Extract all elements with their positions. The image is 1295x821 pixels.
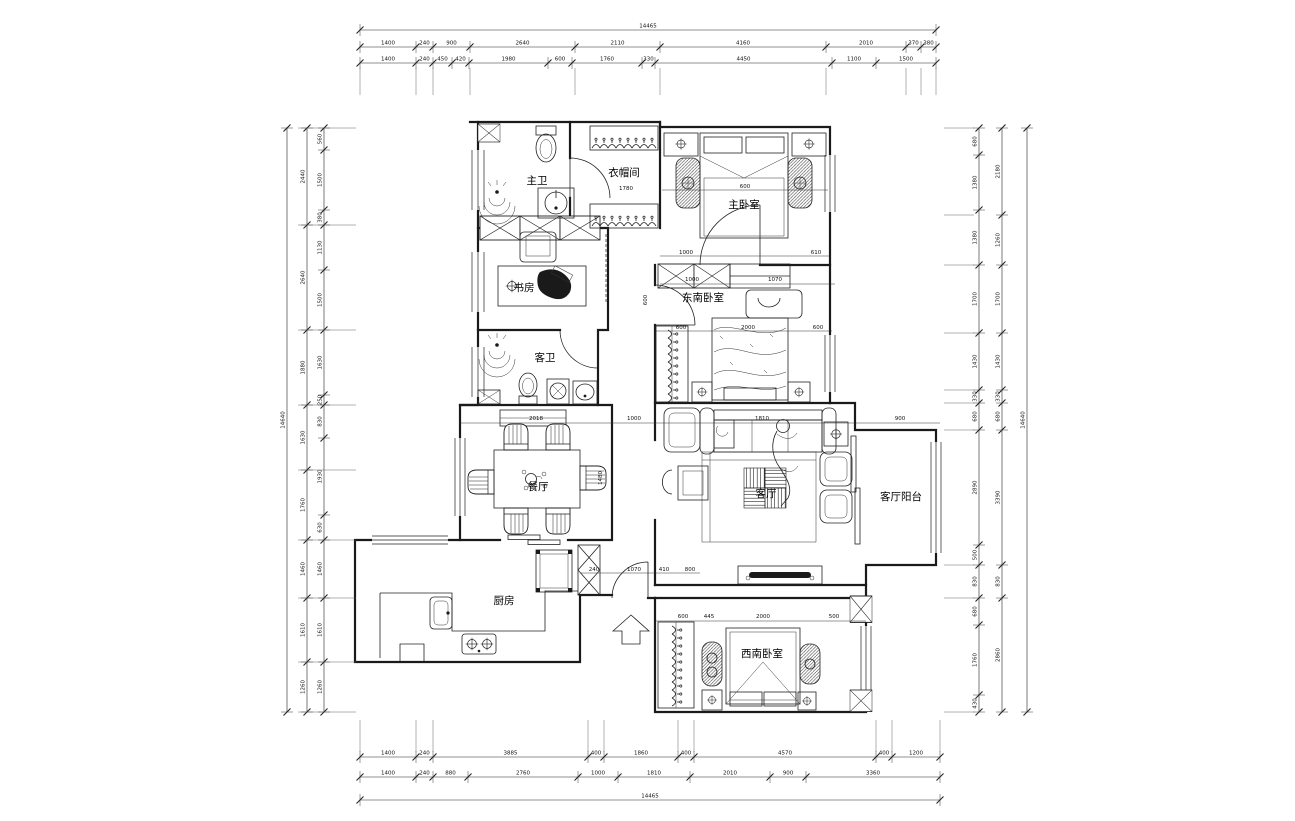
dim-value: 3390 <box>996 490 1002 504</box>
dim-inner: 1000 <box>627 416 641 422</box>
dim-value: 2860 <box>996 648 1002 662</box>
dim-value: 1880 <box>301 360 307 374</box>
dim-value: 1400 <box>381 771 395 777</box>
walls <box>355 122 936 712</box>
dim-value: 2010 <box>723 771 737 777</box>
dim-value: 14640 <box>1021 411 1027 429</box>
floorplan-canvas: 主卫 衣帽间 主卧室 书房 东南卧室 客卫 餐厅 客厅 客厅阳台 厨房 西南卧室… <box>0 0 1295 821</box>
dim-value: 680 <box>973 411 979 422</box>
dim-value: 2010 <box>859 41 873 47</box>
dim-value: 830 <box>973 576 979 587</box>
dim-value: 400 <box>879 751 890 757</box>
dim-value: 2180 <box>996 164 1002 178</box>
dim-bottom-tier1: 14002403885400186040045704001200 <box>357 751 944 764</box>
dim-value: 240 <box>419 771 430 777</box>
dim-right-tier1: 218012601700143033068033908302860 <box>996 125 1009 716</box>
dim-value: 4570 <box>778 751 792 757</box>
dim-value: 1380 <box>973 175 979 189</box>
dim-value: 1460 <box>318 562 324 576</box>
dim-inner: 600 <box>643 294 649 305</box>
dim-inner: 1070 <box>768 277 782 283</box>
room-label-sw-bedroom: 西南卧室 <box>741 647 783 660</box>
dim-value: 1100 <box>847 57 861 63</box>
dim-inner: 610 <box>811 250 822 256</box>
dim-value: 600 <box>555 57 566 63</box>
dim-inner: 800 <box>685 567 696 573</box>
dim-value: 1400 <box>381 751 395 757</box>
dim-value: 420 <box>455 57 466 63</box>
dim-left-overall: 14640 <box>281 125 294 716</box>
dim-value: 1460 <box>301 562 307 576</box>
dim-top-tier2: 140024045042019806001760330445011001500 <box>357 57 940 70</box>
room-label-living: 客厅 <box>756 487 777 500</box>
dim-left-tier2: 5601500380113015001630250830193063014601… <box>318 125 331 716</box>
dim-inner: 600 <box>813 325 824 331</box>
dim-value: 1500 <box>318 173 324 187</box>
dim-value: 380 <box>318 212 324 223</box>
dim-value: 1980 <box>502 57 516 63</box>
dim-value: 400 <box>681 751 692 757</box>
dim-value: 2640 <box>516 41 530 47</box>
dim-value: 250 <box>318 394 324 405</box>
dim-value: 330 <box>996 391 1002 402</box>
dim-value: 880 <box>445 771 456 777</box>
dim-inner: 1000 <box>679 250 693 256</box>
dim-value: 2760 <box>516 771 530 777</box>
dim-value: 450 <box>437 57 448 63</box>
dim-inner: 2000 <box>756 614 770 620</box>
room-label-balcony: 客厅阳台 <box>880 490 922 503</box>
dim-inner: 240 <box>589 567 600 573</box>
dim-inner: 1810 <box>755 416 769 422</box>
dim-value: 240 <box>419 751 430 757</box>
room-se-bedroom <box>656 290 810 402</box>
dim-value: 3360 <box>866 771 880 777</box>
dim-value: 1400 <box>381 41 395 47</box>
dim-inner: 600 <box>740 184 751 190</box>
dim-value: 1500 <box>899 57 913 63</box>
dim-value: 1400 <box>381 57 395 63</box>
room-label-kitchen: 厨房 <box>494 594 515 607</box>
dim-bottom-overall: 14465 <box>357 794 944 807</box>
room-kitchen <box>380 550 578 662</box>
dim-top-tier1: 14002409002640211041602010370380 <box>357 41 940 54</box>
dim-inner: 2018 <box>529 416 543 422</box>
dim-value: 1380 <box>973 230 979 244</box>
dim-value: 240 <box>419 57 430 63</box>
dim-value: 240 <box>419 41 430 47</box>
dim-value: 1760 <box>301 498 307 512</box>
dim-value: 1860 <box>634 751 648 757</box>
room-label-study: 书房 <box>514 281 535 294</box>
dim-value: 14640 <box>281 411 287 429</box>
dim-value: 560 <box>318 133 324 144</box>
room-label-master-bath: 主卫 <box>527 175 548 187</box>
dim-inner: 500 <box>829 614 840 620</box>
dim-value: 1700 <box>973 292 979 306</box>
room-label-se-bedroom: 东南卧室 <box>682 291 724 304</box>
dim-value: 2440 <box>301 169 307 183</box>
dim-value: 400 <box>591 751 602 757</box>
dim-value: 370 <box>908 41 919 47</box>
dim-value: 2890 <box>973 480 979 494</box>
dim-value: 1000 <box>591 771 605 777</box>
dim-value: 330 <box>973 391 979 402</box>
dim-value: 1930 <box>318 469 324 483</box>
dim-value: 330 <box>643 57 654 63</box>
room-label-dining: 餐厅 <box>528 480 549 493</box>
dim-value: 900 <box>446 41 457 47</box>
dim-value: 1430 <box>973 354 979 368</box>
dim-value: 680 <box>973 136 979 147</box>
dim-value: 4160 <box>736 41 750 47</box>
dim-inner: 2000 <box>741 325 755 331</box>
room-sw-bedroom <box>658 622 820 710</box>
dim-value: 1260 <box>318 680 324 694</box>
dim-value: 1130 <box>318 240 324 254</box>
dim-value: 380 <box>923 41 934 47</box>
dim-value: 500 <box>973 549 979 560</box>
dim-value: 830 <box>318 416 324 427</box>
room-label-master-bedroom: 主卧室 <box>728 198 760 211</box>
dim-inner: 600 <box>676 325 687 331</box>
dim-right-tier2: 6801380138017001430330680289050083068017… <box>973 125 986 716</box>
dim-value: 1700 <box>996 292 1002 306</box>
dim-value: 1610 <box>301 623 307 637</box>
dim-right-overall: 14640 <box>1021 125 1034 716</box>
dim-value: 680 <box>996 411 1002 422</box>
dim-inner: 445 <box>704 614 715 620</box>
room-label-cloakroom: 衣帽间 <box>608 166 640 179</box>
dim-value: 1810 <box>647 771 661 777</box>
dim-inner: 1480 <box>598 471 604 485</box>
room-study <box>498 232 586 306</box>
dim-value: 1260 <box>996 233 1002 247</box>
dim-inner: 1070 <box>627 567 641 573</box>
dim-value: 430 <box>973 698 979 709</box>
dim-value: 4450 <box>737 57 751 63</box>
dim-value: 680 <box>973 606 979 617</box>
dim-value: 1610 <box>318 623 324 637</box>
dim-value: 14465 <box>639 24 657 30</box>
dim-inner: 900 <box>895 416 906 422</box>
dim-value: 1630 <box>318 355 324 369</box>
dim-inner: 410 <box>659 567 670 573</box>
dim-value: 1430 <box>996 354 1002 368</box>
dim-value: 1260 <box>301 680 307 694</box>
room-guest-bath <box>478 333 597 404</box>
dim-value: 3885 <box>504 751 518 757</box>
dim-value: 830 <box>996 576 1002 587</box>
dim-value: 630 <box>318 522 324 533</box>
dim-value: 1200 <box>909 751 923 757</box>
room-label-guest-bath: 客卫 <box>535 351 556 364</box>
room-dining <box>468 410 606 534</box>
dim-value: 14465 <box>641 794 659 800</box>
dim-value: 2640 <box>301 270 307 284</box>
dim-bottom-tier2: 140024088027601000181020109003360 <box>357 771 944 784</box>
dim-value: 1630 <box>301 430 307 444</box>
dim-inner: 1780 <box>619 186 633 192</box>
dim-value: 1500 <box>318 293 324 307</box>
dim-value: 1760 <box>600 57 614 63</box>
dim-value: 1760 <box>973 653 979 667</box>
dim-top-overall: 14465 <box>357 24 940 37</box>
dim-left-tier1: 24402640188016301760146016101260 <box>301 125 314 716</box>
dim-inner: 600 <box>678 614 689 620</box>
dim-value: 2110 <box>611 41 625 47</box>
dim-inner: 1000 <box>685 277 699 283</box>
dim-value: 900 <box>783 771 794 777</box>
entry-arrow <box>613 615 649 644</box>
